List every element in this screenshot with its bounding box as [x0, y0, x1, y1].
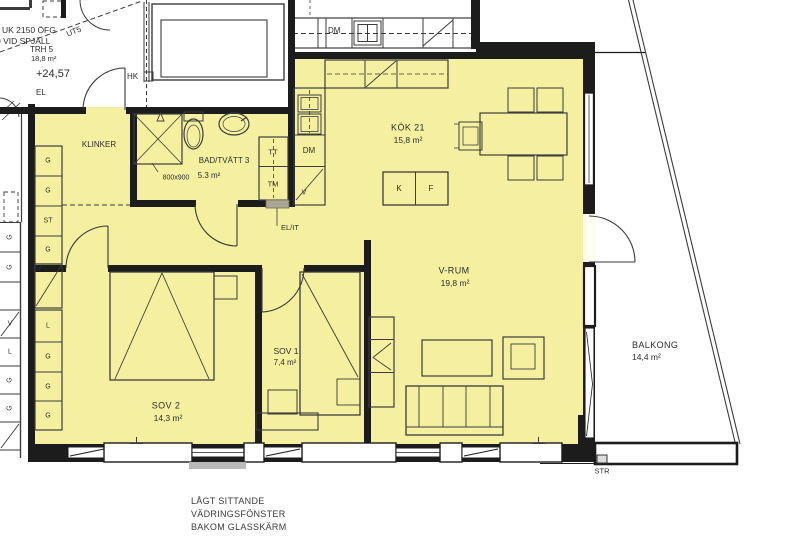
neighbor-dm-label: DM [328, 27, 340, 35]
floor-plan: UK 2150 ÖFG 0 VID SPJÄLL TRH 5 18,8 m² +… [0, 0, 800, 542]
living-name: V-RUM [439, 267, 470, 276]
dishwasher-label: DM [303, 147, 315, 155]
stairwell-area: 18,8 m² [31, 55, 56, 63]
balcony-area: 14,4 m² [632, 353, 661, 362]
closet-label: ST [44, 218, 53, 225]
closet-label: L [46, 323, 50, 330]
neighbor-closet-label: G [7, 234, 14, 239]
balcony-door-opening [583, 214, 596, 262]
bedroom1-name: SOV 1 [273, 347, 298, 356]
window-sill [189, 462, 246, 469]
window [500, 443, 562, 462]
bedroom2-area: 14,3 m² [154, 414, 183, 423]
apartment-floor [28, 52, 595, 447]
window [302, 443, 396, 462]
neighbor-kitchen-counter [293, 0, 478, 48]
kitchen-cabinet-label: V [302, 190, 307, 197]
neighbor-closet-label: G [7, 264, 14, 269]
closet-label: G [45, 247, 50, 254]
window [104, 443, 192, 462]
bathroom-name: BAD/TVÄTT 3 [199, 157, 250, 165]
neighbor-closet-label: L [8, 349, 12, 356]
dryer-label: TT [268, 148, 277, 156]
windows-bottom [68, 443, 562, 469]
living-area: 19,8 m² [441, 279, 470, 288]
stair-door-arc [80, 0, 110, 30]
balcony-name: BALKONG [632, 341, 678, 350]
windows-right [583, 93, 596, 438]
str-box [597, 455, 607, 463]
bedroom2-name: SOV 2 [152, 402, 181, 411]
bathtub [152, 4, 284, 80]
shower-size-label: 800x900 [163, 175, 190, 182]
neighbor-closet-label: V [8, 321, 13, 328]
hk-label: HK [127, 73, 138, 81]
closet-label: G [45, 384, 50, 391]
balcony-slab [595, 443, 737, 464]
bathroom-area: 5.3 m² [198, 172, 221, 180]
plan-drawing [0, 0, 800, 542]
level-label: +24,57 [36, 69, 70, 80]
el-it-box [266, 200, 289, 208]
footnote-line: BAKOM GLASSKÄRM [191, 523, 287, 532]
str-label: STR [595, 467, 610, 475]
freezer-label: F [429, 185, 434, 193]
hall-floor-label: KLINKER [82, 141, 116, 149]
neighbor-closet-label: G [7, 377, 14, 382]
bedroom1-area: 7,4 m² [274, 359, 297, 367]
footnote-line: LÅGT SITTANDE [191, 497, 265, 506]
washer-label: TM [268, 180, 279, 188]
el-it-label: EL/IT [281, 224, 299, 232]
closet-label: G [45, 158, 50, 165]
stairwell-name: TRH 5 [30, 46, 53, 54]
fridge-label: K [396, 185, 401, 193]
kitchen-area: 15,8 m² [394, 136, 423, 145]
footnote-line: VÄDRINGSFÖNSTER [191, 510, 286, 519]
stairwell-note-1: UK 2150 ÖFG [2, 26, 56, 35]
entrance-door [83, 68, 125, 110]
closet-label: G [45, 413, 50, 420]
window [584, 266, 595, 326]
closet-label: G [45, 188, 50, 195]
el-label: EL [36, 89, 46, 97]
kitchen-name: KÖK 21 [391, 124, 425, 133]
closet-label: G [45, 354, 50, 361]
balcony-railing [629, 0, 741, 444]
neighbor-closet-label: G [7, 405, 14, 410]
tall-cabinet-label: V [37, 266, 41, 273]
